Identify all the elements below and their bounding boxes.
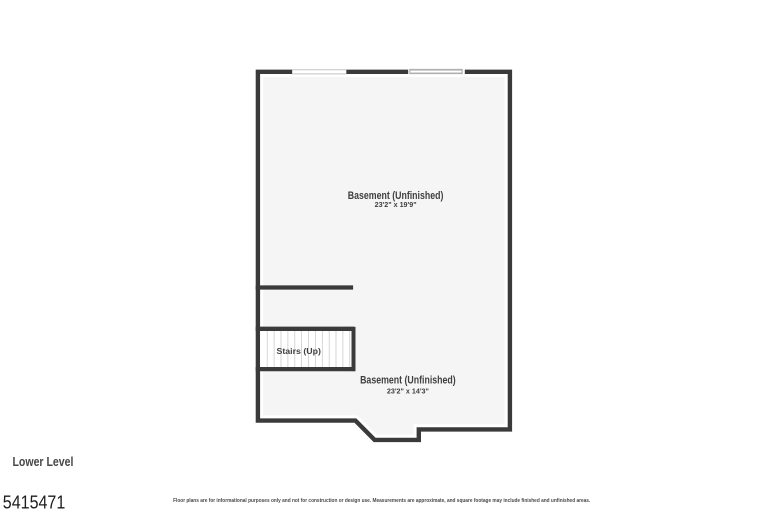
svg-text:23'2" x 19'9": 23'2" x 19'9" (375, 200, 417, 209)
svg-text:Lower Level: Lower Level (13, 454, 74, 469)
svg-text:Stairs (Up): Stairs (Up) (277, 346, 322, 356)
svg-text:Floor plans are for informatio: Floor plans are for informational purpos… (173, 498, 591, 504)
svg-text:5415471: 5415471 (3, 492, 66, 512)
svg-text:Basement (Unfinished): Basement (Unfinished) (360, 375, 456, 387)
svg-text:23'2" x 14'3": 23'2" x 14'3" (387, 387, 429, 396)
